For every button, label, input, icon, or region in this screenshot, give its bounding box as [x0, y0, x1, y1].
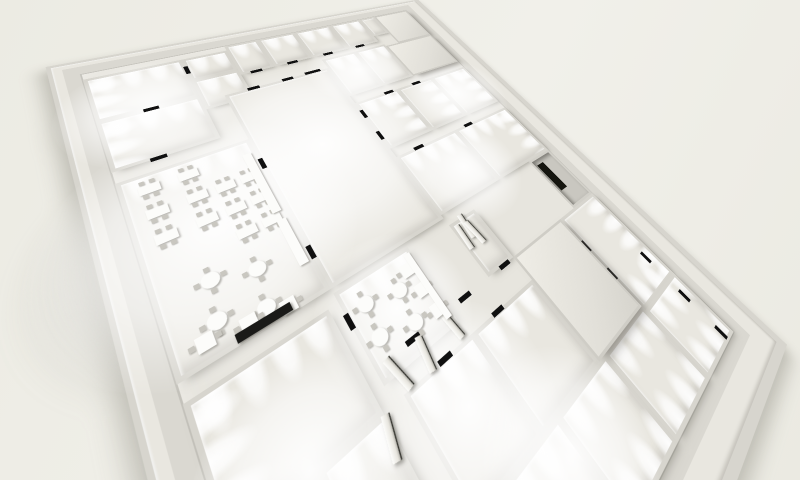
door-opening [323, 52, 334, 56]
door-opening [458, 291, 472, 304]
door-opening [355, 44, 365, 48]
wall-wash-light-left [191, 365, 300, 480]
floor-plan-model [62, 5, 750, 480]
render-canvas [0, 0, 800, 480]
wall-wash-light-top [401, 133, 475, 184]
floor-field [62, 5, 750, 480]
wall-wash-light-top [88, 62, 189, 105]
